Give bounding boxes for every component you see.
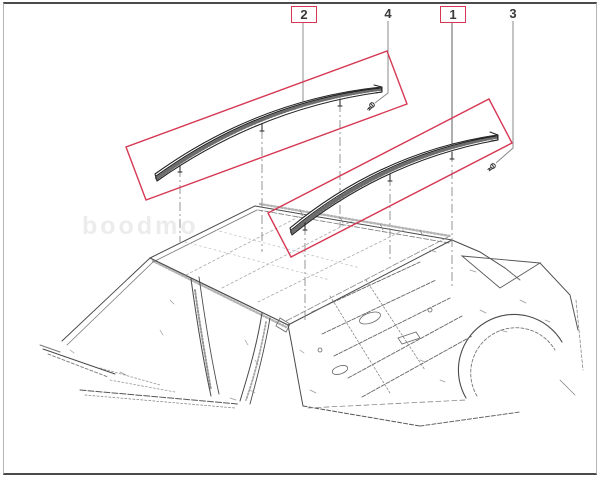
callout-label-3[interactable]: 3: [501, 6, 525, 21]
callout-label-1[interactable]: 1: [440, 6, 466, 23]
leader-line-3: [496, 21, 513, 163]
roof-rail-left-part: [155, 85, 382, 181]
parts-diagram-page: boodmo: [0, 0, 600, 480]
exploded-view-drawing: [0, 0, 600, 480]
screw-part-3-icon: [487, 162, 496, 172]
callout-label-4[interactable]: 4: [376, 6, 400, 21]
callout-label-2[interactable]: 2: [291, 6, 317, 23]
car-body-sketch: [40, 204, 583, 426]
screw-part-4-icon: [367, 102, 375, 112]
